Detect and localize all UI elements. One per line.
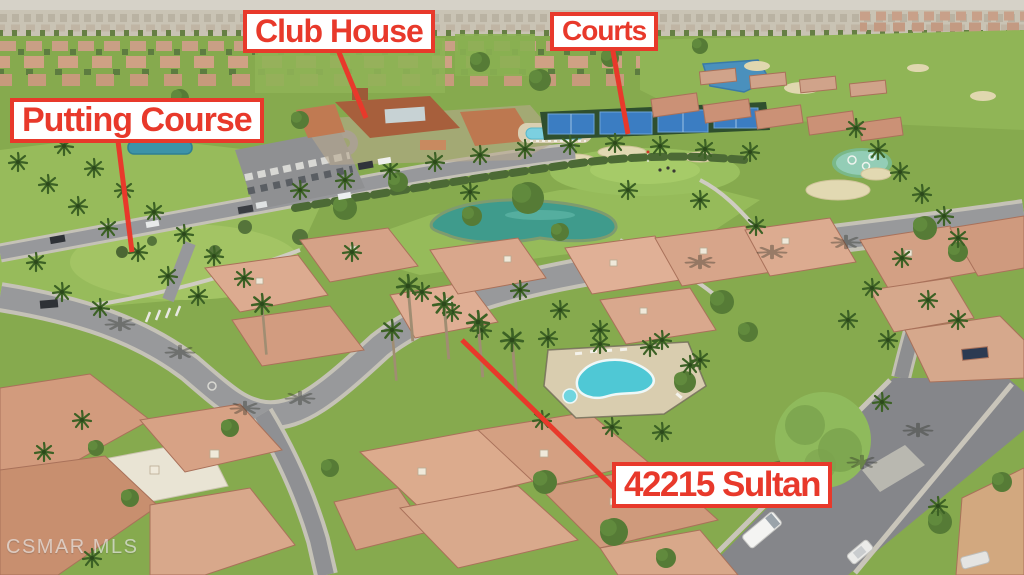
distant-skyline [0, 0, 1024, 36]
spa [563, 389, 577, 403]
aerial-photo-scene [0, 0, 1024, 575]
property-address-label: 42215 Sultan [612, 462, 832, 508]
courts-label: Courts [550, 12, 658, 51]
water-feature [128, 141, 192, 154]
putting-course-label: Putting Course [10, 98, 264, 143]
aerial-photo: Putting Course Club House Courts 42215 S… [0, 0, 1024, 575]
club-house-label: Club House [243, 10, 435, 53]
mls-watermark: CSMAR MLS [6, 536, 138, 559]
